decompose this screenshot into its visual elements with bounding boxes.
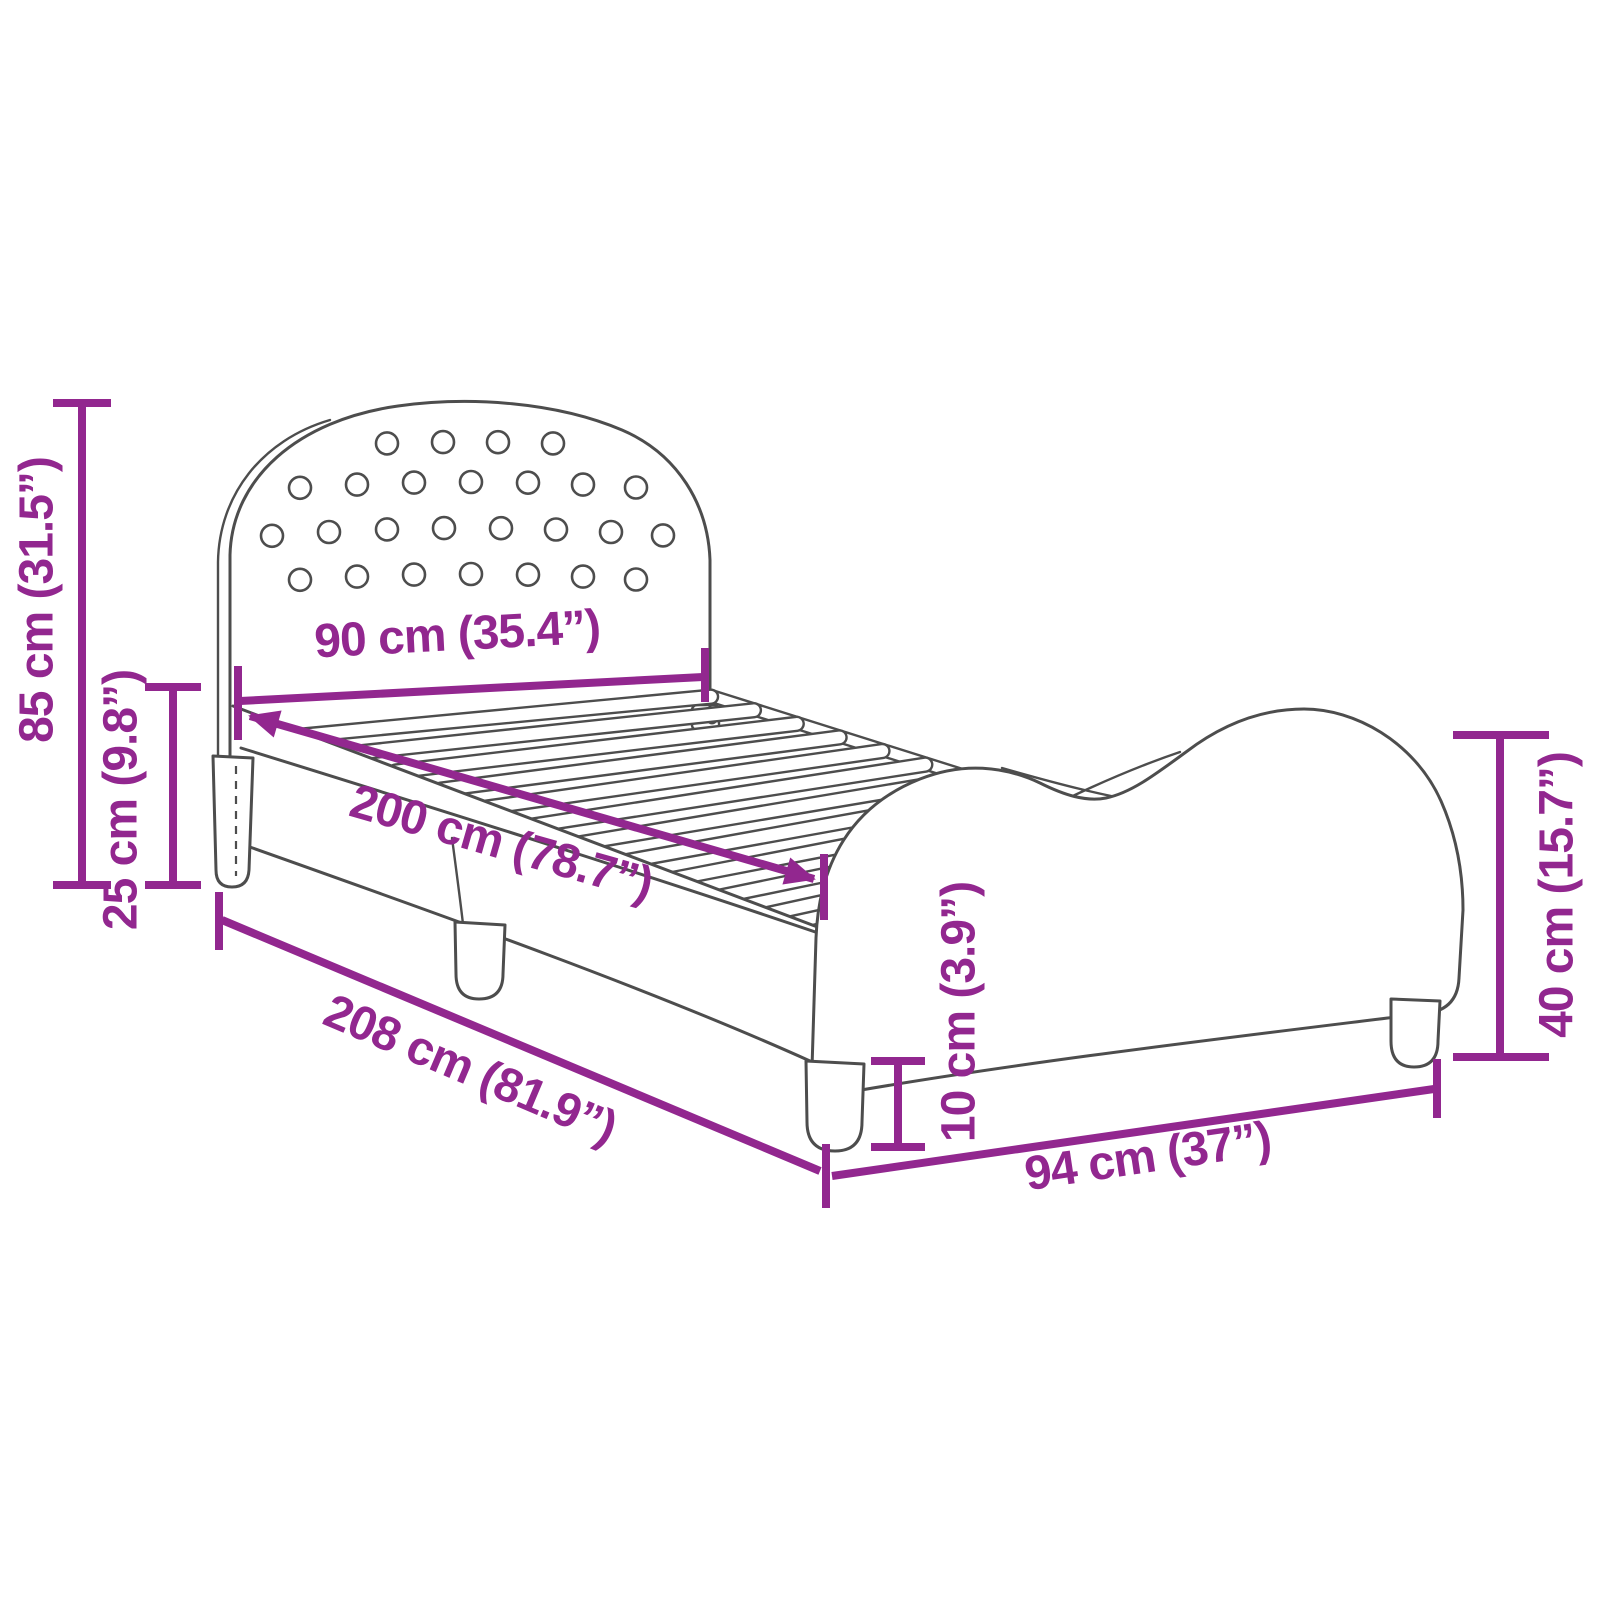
- dim-label-94cm: 94 cm (37”): [1021, 1112, 1274, 1201]
- tufting-button: [261, 525, 283, 547]
- tufting-button: [289, 477, 311, 499]
- tufting-button: [625, 477, 647, 499]
- tufting-button: [517, 564, 539, 586]
- tufting-button: [403, 472, 425, 494]
- tufting-button: [487, 431, 509, 453]
- tufting-button: [460, 471, 482, 493]
- tufting-button: [376, 518, 398, 540]
- dim-footboard-height: 40 cm (15.7”): [1453, 735, 1584, 1057]
- tufting-button: [346, 566, 368, 588]
- tufting-button: [289, 569, 311, 591]
- footboard-right-leg: [1391, 999, 1440, 1067]
- headboard-leg: [213, 756, 253, 887]
- tufting-button: [346, 474, 368, 496]
- dim-side-rail-height: 25 cm (9.8”): [95, 670, 201, 930]
- dim-label-40cm: 40 cm (15.7”): [1531, 752, 1584, 1038]
- tufting-button: [376, 432, 398, 454]
- tufting-button: [490, 517, 512, 539]
- diagram-svg: 85 cm (31.5”) 25 cm (9.8”) 90 cm (35.4”)…: [0, 0, 1600, 1600]
- tufting-button: [460, 563, 482, 585]
- tufting-button: [318, 521, 340, 543]
- tufting-button: [433, 517, 455, 539]
- tufting-button: [600, 521, 622, 543]
- tufting-button: [403, 564, 425, 586]
- tufting-button: [542, 432, 564, 454]
- tufting-button: [652, 524, 674, 546]
- front-corner-leg: [806, 1061, 864, 1151]
- tufting-button: [517, 472, 539, 494]
- dim-label-85cm: 85 cm (31.5”): [11, 457, 64, 743]
- tufting-button: [545, 519, 567, 541]
- tufting-button: [572, 474, 594, 496]
- tufting-button: [625, 569, 647, 591]
- middle-leg: [455, 922, 505, 999]
- dim-label-10cm: 10 cm (3.9”): [933, 882, 986, 1142]
- dim-label-25cm: 25 cm (9.8”): [95, 670, 148, 930]
- tufting-button: [432, 431, 454, 453]
- tufting-button: [572, 566, 594, 588]
- bed-dimension-diagram: 85 cm (31.5”) 25 cm (9.8”) 90 cm (35.4”)…: [0, 0, 1600, 1600]
